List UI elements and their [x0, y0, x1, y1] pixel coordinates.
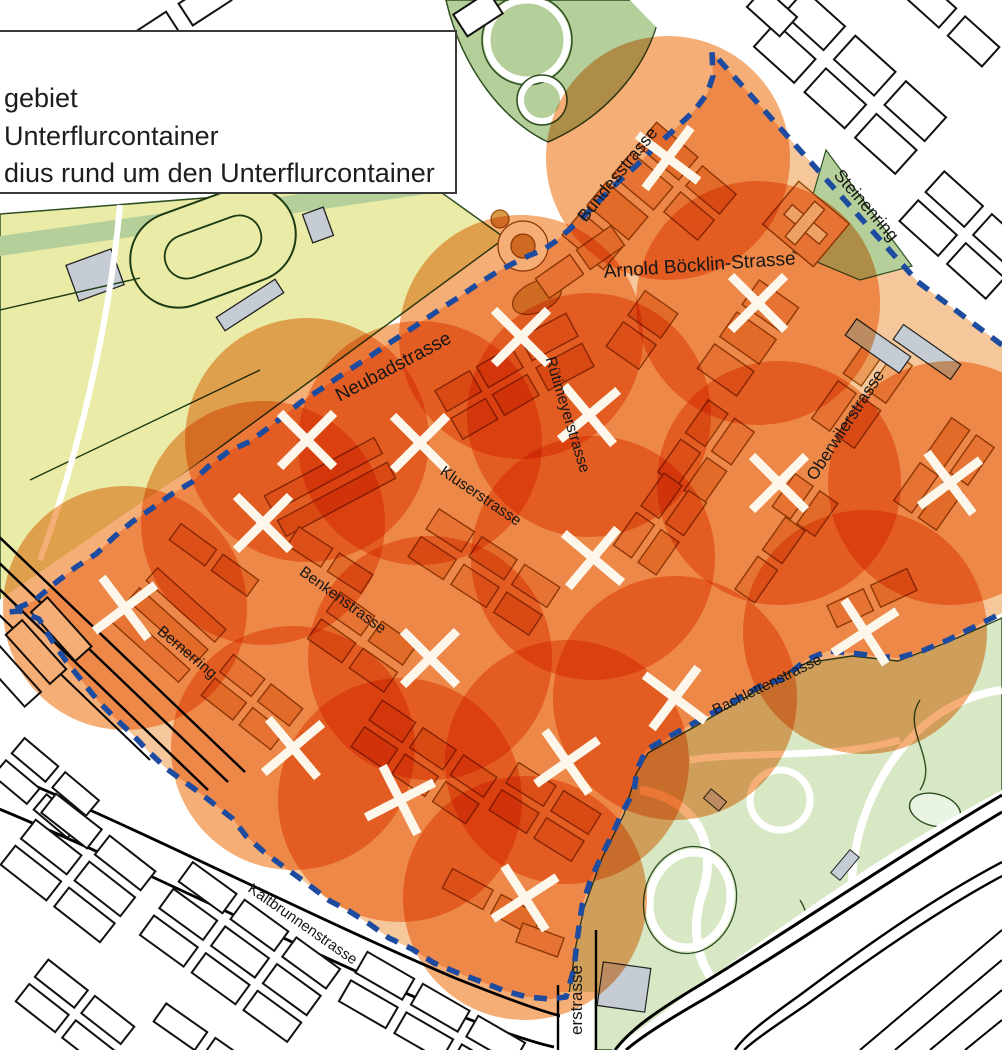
map-screenshot: BundesstrasseSteinenringArnold Böcklin-S… [0, 0, 1002, 1050]
street-label-erstrasse: erstrasse [567, 965, 586, 1035]
legend-item-district-area: gebiet [4, 83, 78, 113]
city-map: BundesstrasseSteinenringArnold Böcklin-S… [0, 0, 1002, 1050]
legend-item-container-location: Unterflurcontainer [4, 121, 219, 151]
legend: gebiet Unterflurcontainer dius rund um d… [0, 31, 456, 193]
legend-item-container-radius: dius rund um den Unterflurcontainer [4, 158, 435, 188]
